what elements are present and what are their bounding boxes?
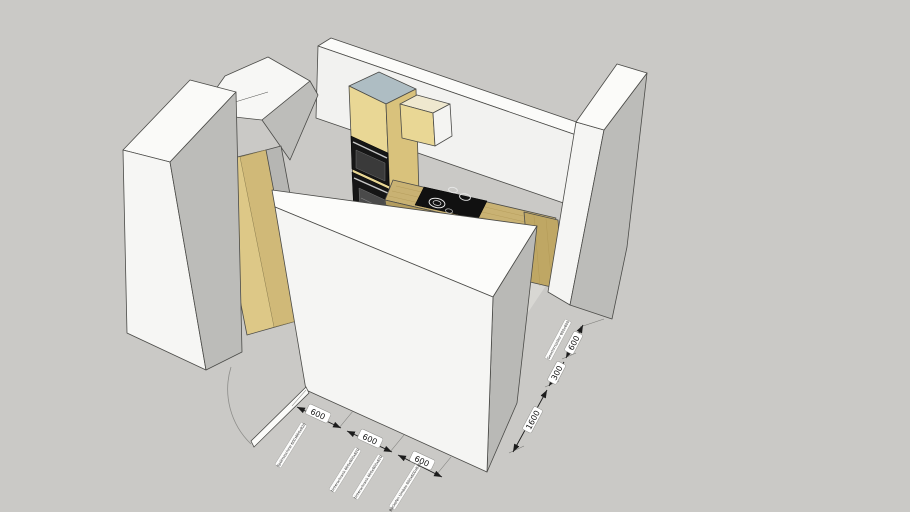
model-viewport[interactable]: 600 600 600 600 300 1600	[0, 0, 910, 512]
wall-cabinet	[400, 95, 452, 146]
